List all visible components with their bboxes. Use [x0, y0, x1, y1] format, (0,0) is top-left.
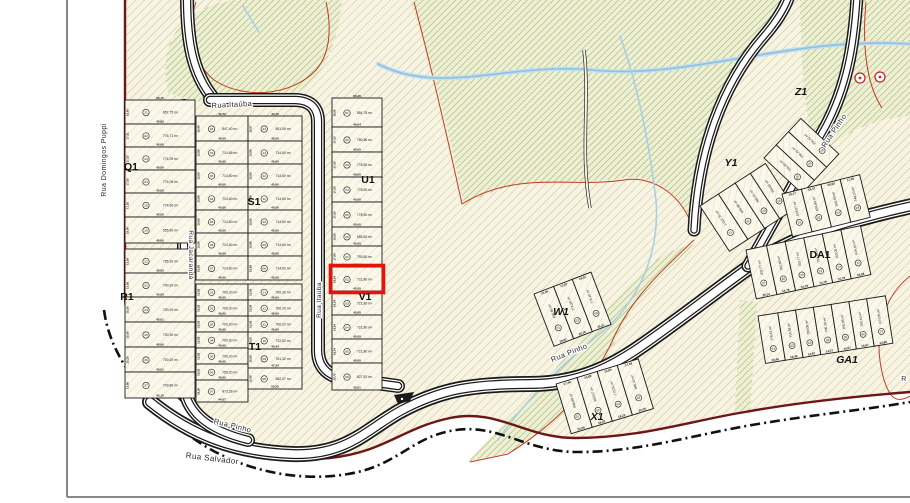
lot-side-dim: 19,00	[125, 227, 129, 234]
lot-side-dim: 16,04	[332, 276, 336, 283]
lot-frontage-dim: 45,00	[271, 295, 279, 299]
lot-area: 700,20 m²	[222, 338, 238, 342]
lot-frontage-dim: 45,00	[156, 342, 164, 346]
lot-number: 09	[262, 357, 266, 361]
lot-frontage-dim: 45,00	[271, 205, 279, 209]
lot-number: 12	[262, 306, 266, 310]
lot-side-dim: 15,56	[125, 306, 129, 313]
lot-area: 714,60 m²	[275, 174, 291, 178]
lot-side-dim: 17,50	[332, 211, 336, 218]
lot-number: 23	[144, 284, 148, 288]
lot-side-dim: 15,20	[125, 356, 129, 363]
block-label-v1: V1	[359, 291, 372, 303]
lot-number: 26	[144, 358, 148, 362]
lot-number: 04	[345, 188, 349, 192]
lot-area: 857,75 m²	[163, 111, 179, 115]
lot-frontage-dim: 45,86	[156, 119, 164, 123]
block-label-r1: R1	[120, 291, 134, 303]
lot-area: 793,80 m²	[357, 255, 373, 259]
lot-number: 07	[210, 267, 214, 271]
lot-number: 03	[210, 322, 214, 326]
lot-side-dim: 15,88	[196, 265, 200, 272]
lot-number: 11	[263, 322, 266, 326]
lot-area: 778,50 m²	[357, 163, 373, 167]
lot-area: 703,80 m²	[163, 384, 179, 388]
lot-side-dim: 13,06	[125, 382, 129, 389]
lot-side-dim: 15,56	[125, 258, 129, 265]
lot-area: 776,71 m²	[163, 134, 179, 138]
block-top-dim: 66,15	[156, 96, 164, 100]
lot-frontage-dim: 45,00	[218, 182, 226, 186]
lot-side-dim: 17,50	[332, 161, 336, 168]
lot-area: 774,09 m²	[163, 180, 179, 184]
lot-frontage-dim: 45,00	[353, 197, 361, 201]
lot-side-dim: 18,75	[332, 373, 336, 380]
lot-number: 11	[263, 197, 266, 201]
lot-number: 22	[144, 134, 148, 138]
lot-number: 06	[210, 243, 214, 247]
lot-frontage-dim: 45,00	[271, 136, 279, 140]
lot-number: 02	[345, 278, 349, 282]
block-label-w1: W1	[553, 306, 569, 318]
block-r1: 22765,20 m²45,0015,5623700,20 m²45,0015,…	[125, 249, 195, 398]
lot-side-dim: 17,31	[125, 132, 129, 139]
lot-frontage-dim: 45,00	[353, 147, 361, 151]
lot-area: 682,37 m²	[275, 377, 291, 381]
lot-number: 22	[144, 260, 148, 264]
lot-number: 08	[262, 267, 266, 271]
lot-number: 10	[262, 220, 266, 224]
lot-number: 06	[345, 235, 349, 239]
lot-frontage-dim: 45,44	[271, 344, 279, 348]
plat-map-page: 21857,75 m²45,8616,6566,1522776,71 m²45,…	[0, 0, 910, 503]
lot-frontage-dim: 45,00	[156, 165, 164, 169]
lot-number: 08	[262, 377, 266, 381]
lot-frontage-dim: 45,01	[156, 317, 164, 321]
lot-area: 655,90 m²	[163, 229, 179, 233]
lot-side-dim: 15,56	[248, 320, 252, 327]
lot-area: 827,52 m²	[357, 375, 373, 379]
lot-side-dim: 16,04	[332, 348, 336, 355]
lot-side-dim: 12,48	[248, 375, 252, 382]
street-label-rua-itauba-vertical: Rua Itaúba	[316, 282, 323, 318]
lot-area: 851,06 m²	[275, 127, 291, 131]
lot-number: 03	[210, 174, 214, 178]
lot-frontage-dim: 50,25	[271, 384, 279, 388]
lot-frontage-dim: 45,00	[218, 327, 226, 331]
lot-side-dim: 15,88	[196, 149, 200, 156]
lot-number: 04	[210, 338, 214, 342]
block-u1: 01854,78 m²46,0416,5066,2802780,86 m²45,…	[332, 94, 382, 246]
lot-area: 655,50 m²	[357, 235, 373, 239]
lot-frontage-dim: 45,00	[353, 222, 361, 226]
lot-area: 721,80 m²	[357, 278, 373, 282]
lot-number: 25	[144, 204, 148, 208]
lot-number: 03	[345, 302, 349, 306]
lot-number: 02	[345, 138, 349, 142]
lot-number: 13	[262, 151, 266, 155]
lot-number: 01	[345, 111, 349, 115]
block-top-dim: 43,70	[271, 112, 279, 116]
lot-frontage-dim: 45,00	[218, 275, 226, 279]
lot-area: 700,30 m²	[275, 290, 291, 294]
lot-side-dim: 16,04	[332, 300, 336, 307]
lot-side-dim: 16,56	[248, 355, 252, 362]
lot-side-dim: 17,50	[332, 186, 336, 193]
lot-number: 21	[144, 111, 148, 115]
lot-frontage-dim: 45,00	[218, 375, 226, 379]
lot-side-dim: 15,56	[248, 304, 252, 311]
lot-side-dim: 15,56	[196, 352, 200, 359]
lot-number: 02	[210, 151, 214, 155]
lot-side-dim: 16,97	[248, 125, 252, 132]
lot-frontage-dim: 45,00	[271, 327, 279, 331]
lot-number: 01	[210, 127, 214, 131]
lot-area: 847,40 m²	[222, 127, 238, 131]
lot-area: 774,65 m²	[163, 204, 179, 208]
lot-frontage-dim: 45,00	[353, 286, 361, 290]
lot-area: 714,60 m²	[222, 174, 238, 178]
lot-area: 765,20 m²	[163, 260, 179, 264]
street-label-rua-domingos-puppi: Rua Domingos Puppi	[101, 123, 108, 196]
block-label-q1: Q1	[124, 161, 138, 173]
lot-frontage-dim: 46,04	[353, 122, 361, 126]
survey-marker-icon	[855, 73, 865, 83]
lot-number: 04	[345, 326, 349, 330]
block-label-y1: Y1	[725, 157, 738, 169]
lot-frontage-dim: 45,00	[218, 343, 226, 347]
lot-frontage-dim: 45,00	[218, 205, 226, 209]
block-top-dim: 43,72	[218, 112, 226, 116]
lot-area: 721,80 m²	[357, 326, 373, 330]
lot-area: 714,60 m²	[222, 197, 238, 201]
lot-area: 700,20 m²	[222, 306, 238, 310]
lot-area: 700,20 m²	[222, 354, 238, 358]
lot-number: 09	[262, 243, 266, 247]
lot-frontage-dim: 44,07	[218, 397, 226, 401]
lot-frontage-dim: 45,00	[353, 172, 361, 176]
lot-number: 01	[210, 290, 214, 294]
lot-side-dim: 18,46	[196, 125, 200, 132]
lot-side-dim: 15,56	[196, 304, 200, 311]
lot-area: 714,60 m²	[275, 267, 291, 271]
lot-frontage-dim: 45,00	[271, 251, 279, 255]
lot-number: 04	[210, 197, 214, 201]
block-top-dim: 66,28	[353, 94, 361, 98]
lot-number: 05	[345, 213, 349, 217]
block-s1-left: 01847,40 m²45,0018,4643,7202714,65 m²45,…	[196, 112, 248, 280]
lot-number: 14	[262, 127, 266, 131]
lot-side-dim: 15,56	[196, 368, 200, 375]
lot-side-dim: 15,56	[248, 288, 252, 295]
lot-area: 714,60 m²	[222, 267, 238, 271]
lot-side-dim: 15,88	[196, 172, 200, 179]
lot-area: 714,60 m²	[275, 243, 291, 247]
lot-area: 714,60 m²	[275, 151, 291, 155]
lot-side-dim: 15,88	[196, 241, 200, 248]
lot-area: 700,20 m²	[163, 308, 179, 312]
lot-frontage-dim: 45,00	[218, 159, 226, 163]
lot-area: 700,20 m²	[275, 306, 291, 310]
lot-number: 06	[345, 375, 349, 379]
lot-frontage-dim: 45,00	[218, 228, 226, 232]
lot-side-dim: 15,56	[196, 288, 200, 295]
lot-frontage-dim: 45,00	[353, 241, 361, 245]
lot-side-dim: 17,20	[125, 202, 129, 209]
block-label-x1: X1	[590, 411, 604, 423]
lot-frontage-dim: 45,01	[156, 367, 164, 371]
lot-number: 24	[144, 308, 148, 312]
lot-area: 700,20 m²	[222, 322, 238, 326]
block-t1-right: 13700,30 m²45,0015,5612700,20 m²45,0015,…	[248, 284, 302, 389]
lot-frontage-dim: 45,00	[156, 268, 164, 272]
lot-frontage-dim: 45,00	[218, 136, 226, 140]
lot-side-dim: 15,88	[196, 218, 200, 225]
lot-frontage-dim: 45,00	[218, 311, 226, 315]
lot-area: 722,52 m²	[275, 339, 291, 343]
lot-frontage-dim: 45,00	[271, 311, 279, 315]
lot-side-dim: 15,88	[196, 195, 200, 202]
block-label-da1: DA1	[809, 249, 830, 261]
street-label-rua-jacaranda: Rua Jacarandá	[187, 230, 194, 279]
lot-frontage-dim: 45,00	[271, 228, 279, 232]
lot-area: 759,20 m²	[222, 370, 238, 374]
lot-number: 12	[262, 174, 266, 178]
lot-frontage-dim: 45,10	[156, 393, 164, 397]
lot-frontage-dim: 45,00	[353, 358, 361, 362]
lot-frontage-dim: 43,01	[353, 385, 361, 389]
lot-area: 700,20 m²	[163, 284, 179, 288]
lot-area: 714,60 m²	[275, 220, 291, 224]
lot-side-dim: 15,56	[196, 320, 200, 327]
lot-side-dim: 15,56	[125, 282, 129, 289]
lot-frontage-dim: 45,00	[218, 295, 226, 299]
lot-frontage-dim: 45,00	[271, 275, 279, 279]
lot-number: 10	[262, 339, 266, 343]
lot-number: 03	[345, 163, 349, 167]
survey-marker-icon	[875, 72, 885, 82]
lot-frontage-dim: 45,00	[271, 182, 279, 186]
lot-area: 873,28 m²	[222, 390, 238, 394]
lot-area: 761,32 m²	[275, 357, 291, 361]
block-v1: 01793,80 m²45,0017,6402721,80 m²45,0016,…	[331, 246, 384, 390]
lot-area: 778,50 m²	[357, 213, 373, 217]
lot-frontage-dim: 45,00	[218, 359, 226, 363]
lot-number: 24	[144, 180, 148, 184]
lot-side-dim: 17,30	[125, 178, 129, 185]
lot-number: 06	[210, 370, 214, 374]
lot-frontage-dim: 45,00	[271, 159, 279, 163]
lot-side-dim: 16,65	[125, 109, 129, 116]
lot-side-dim: 15,88	[248, 172, 252, 179]
lot-side-dim: 19,30	[196, 387, 200, 394]
lot-side-dim: 17,64	[332, 253, 336, 260]
street-label-rua-partial-right: R	[901, 376, 906, 383]
lot-area: 854,78 m²	[357, 111, 373, 115]
lot-area: 700,20 m²	[222, 290, 238, 294]
lot-frontage-dim: 45,00	[156, 212, 164, 216]
lot-number: 26	[144, 229, 148, 233]
block-label-z1: Z1	[794, 86, 807, 98]
lot-frontage-dim: 45,00	[353, 310, 361, 314]
lot-area: 714,60 m²	[275, 197, 291, 201]
lot-area: 780,86 m²	[357, 138, 373, 142]
lot-area: 721,80 m²	[357, 350, 373, 354]
lot-side-dim: 15,56	[125, 331, 129, 338]
lot-number: 13	[262, 290, 266, 294]
lot-frontage-dim: 45,00	[156, 238, 164, 242]
lot-frontage-dim: 45,00	[353, 334, 361, 338]
lot-side-dim: 15,88	[248, 241, 252, 248]
lot-number: 05	[345, 350, 349, 354]
lot-number: 05	[210, 220, 214, 224]
lot-frontage-dim: 45,00	[156, 188, 164, 192]
lot-side-dim: 15,88	[248, 149, 252, 156]
lot-number: 23	[144, 157, 148, 161]
lot-number: 25	[144, 333, 148, 337]
lot-side-dim: 16,50	[332, 109, 336, 116]
lot-area: 774,09 m²	[163, 157, 179, 161]
block-label-t1: T1	[249, 341, 261, 353]
lot-frontage-dim: 45,00	[218, 251, 226, 255]
lot-area: 700,30 m²	[163, 333, 179, 337]
lot-area: 700,20 m²	[275, 322, 291, 326]
lot-area: 700,20 m²	[163, 358, 179, 362]
block-t1-left: 01700,20 m²45,0015,5602700,20 m²45,0015,…	[196, 284, 248, 402]
block-label-u1: U1	[361, 174, 375, 186]
lot-area: 714,60 m²	[222, 243, 238, 247]
block-label-ga1: GA1	[836, 354, 858, 366]
lot-area: 714,60 m²	[222, 220, 238, 224]
block-label-s1: S1	[248, 196, 261, 208]
lot-number: 27	[144, 384, 148, 388]
lot-side-dim: 15,88	[248, 265, 252, 272]
lot-frontage-dim: 45,00	[156, 142, 164, 146]
lot-area: 778,50 m²	[357, 188, 373, 192]
lot-side-dim: 15,56	[196, 336, 200, 343]
lot-number: 01	[345, 255, 349, 259]
lot-number: 05	[210, 354, 214, 358]
lot-number: 07	[210, 390, 214, 394]
plat-map-canvas: 21857,75 m²45,8616,6566,1522776,71 m²45,…	[0, 0, 910, 503]
lot-frontage-dim: 47,24	[271, 363, 279, 367]
lot-side-dim: 19,50	[332, 233, 336, 240]
lot-side-dim: 17,50	[332, 136, 336, 143]
lot-frontage-dim: 45,00	[156, 292, 164, 296]
lot-number: 02	[210, 306, 214, 310]
lot-side-dim: 16,04	[332, 324, 336, 331]
lot-side-dim: 15,88	[248, 218, 252, 225]
lot-area: 714,65 m²	[222, 151, 238, 155]
